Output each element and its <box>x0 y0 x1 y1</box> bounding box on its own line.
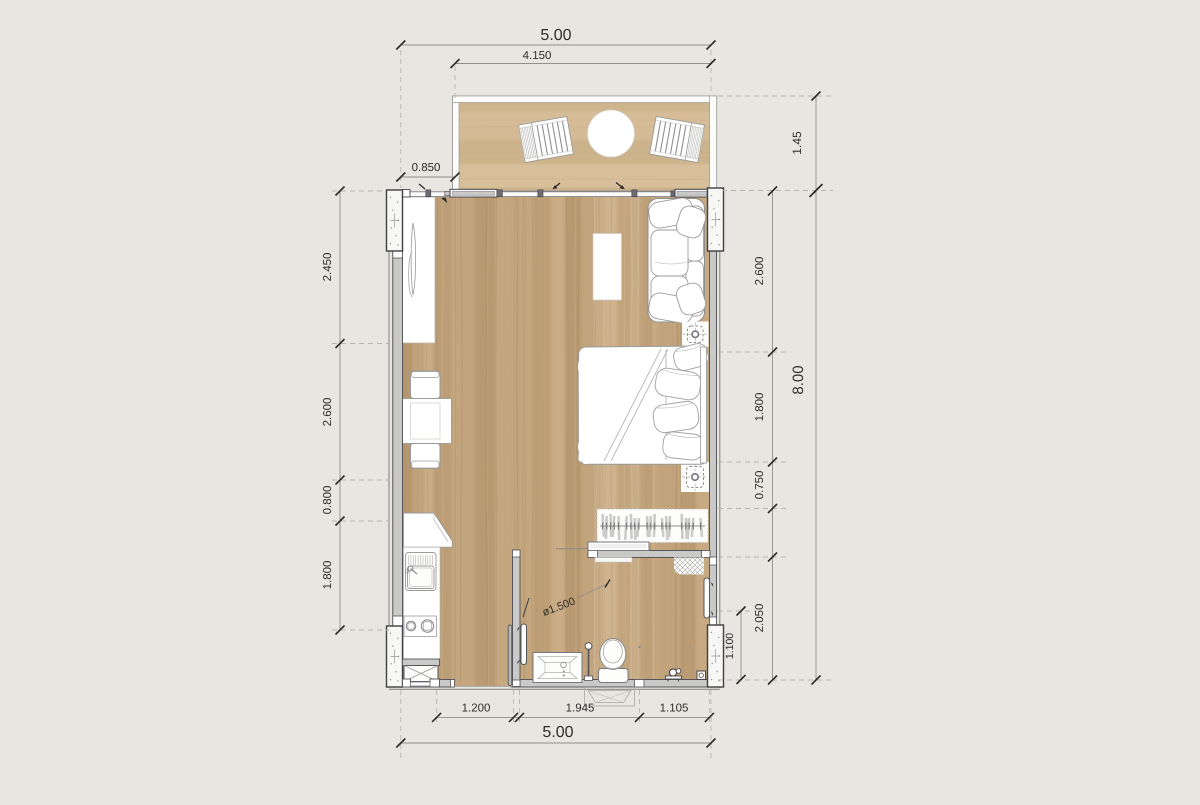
svg-text:2.600: 2.600 <box>322 398 334 427</box>
svg-text:1.105: 1.105 <box>660 703 689 715</box>
svg-text:8.00: 8.00 <box>790 365 807 394</box>
svg-text:1.45: 1.45 <box>790 131 804 155</box>
svg-text:4.150: 4.150 <box>523 50 552 62</box>
svg-text:5.00: 5.00 <box>542 724 573 741</box>
svg-text:1.800: 1.800 <box>322 561 334 590</box>
svg-text:1.945: 1.945 <box>566 703 595 715</box>
svg-text:0.750: 0.750 <box>754 471 766 500</box>
svg-text:5.00: 5.00 <box>540 27 571 44</box>
svg-text:1.200: 1.200 <box>462 703 491 715</box>
svg-text:1.800: 1.800 <box>754 393 766 422</box>
svg-text:1.100: 1.100 <box>724 633 736 659</box>
svg-text:0.850: 0.850 <box>412 162 441 174</box>
svg-text:2.600: 2.600 <box>754 257 766 286</box>
svg-text:2.050: 2.050 <box>754 604 766 633</box>
svg-text:2.450: 2.450 <box>322 253 334 282</box>
svg-text:0.800: 0.800 <box>322 486 334 515</box>
